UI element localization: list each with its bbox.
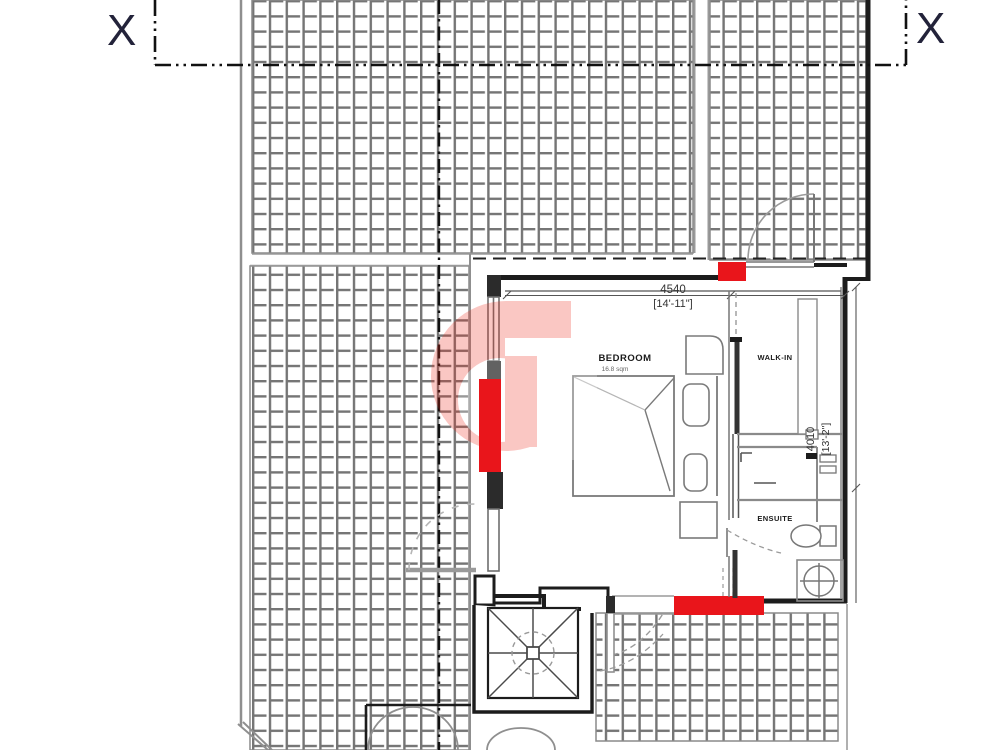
svg-text:X: X xyxy=(107,6,136,55)
svg-text:4540: 4540 xyxy=(660,284,686,296)
svg-text:X: X xyxy=(916,4,945,53)
svg-text:ENSUITE: ENSUITE xyxy=(757,514,792,523)
svg-text:[14'-11"]: [14'-11"] xyxy=(653,298,692,310)
svg-text:BEDROOM: BEDROOM xyxy=(598,353,651,364)
svg-text:16.8 sqm: 16.8 sqm xyxy=(602,366,629,373)
svg-text:[13'-2"]: [13'-2"] xyxy=(820,423,832,456)
svg-text:WALK-IN: WALK-IN xyxy=(758,353,793,362)
svg-text:4010: 4010 xyxy=(805,427,817,451)
